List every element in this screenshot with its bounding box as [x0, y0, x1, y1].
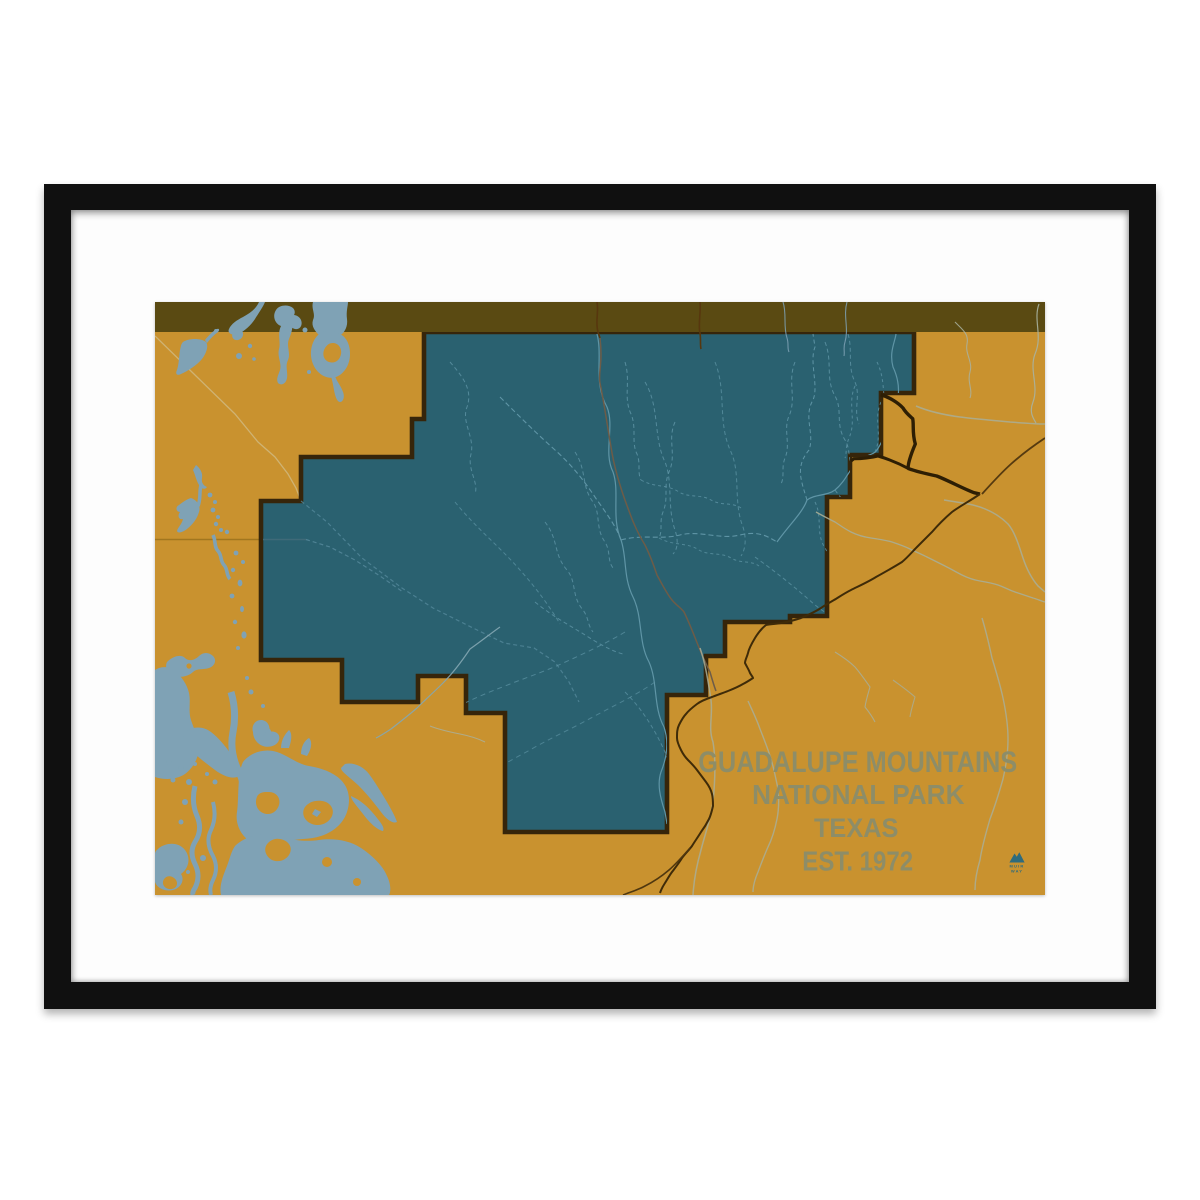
- svg-text:EST. 1972: EST. 1972: [802, 846, 913, 877]
- svg-text:NATIONAL PARK: NATIONAL PARK: [752, 779, 964, 810]
- svg-text:TEXAS: TEXAS: [814, 813, 899, 843]
- svg-text:WAY: WAY: [1011, 869, 1023, 874]
- svg-text:GUADALUPE MOUNTAINS: GUADALUPE MOUNTAINS: [698, 746, 1017, 779]
